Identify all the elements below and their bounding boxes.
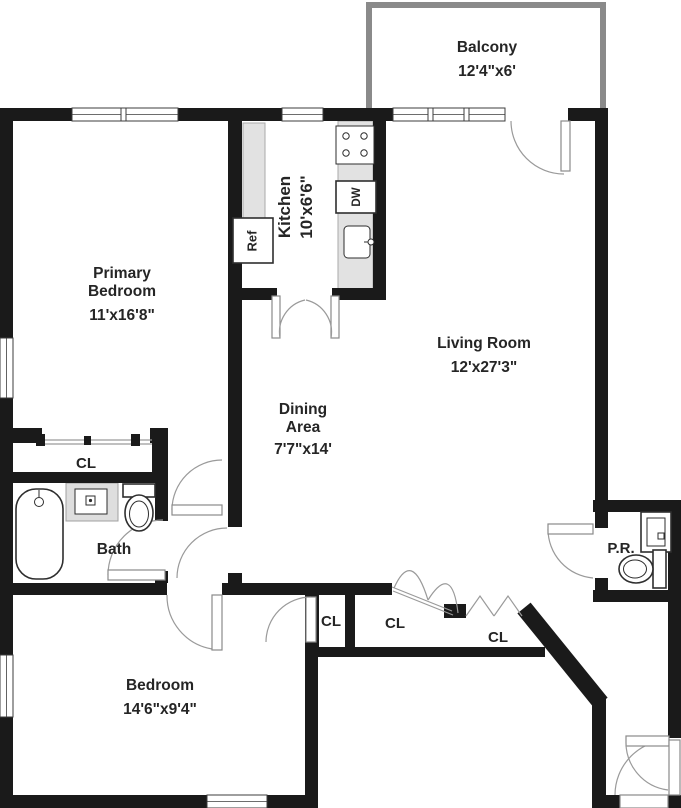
floor-plan: Ref DW [0,0,681,808]
window-living-top [393,108,505,121]
floor-plan-svg: Ref DW [0,0,681,808]
kitchen-sink [344,226,374,258]
wall [593,500,681,512]
refrigerator: Ref [233,218,273,263]
wall [592,698,606,798]
window-primary-left [0,338,13,398]
living-room-dims: 12'x27'3" [451,359,517,376]
powder-room-label: P.R. [607,540,634,557]
living-room-label: Living Room [437,335,531,352]
wall [593,590,681,602]
counter-left [243,123,265,219]
wall [444,604,466,618]
wall [0,428,42,443]
wall [668,795,681,808]
wall [0,108,13,338]
primary-bedroom-label-2: Bedroom [88,283,156,300]
wall [595,512,608,528]
bath-label: Bath [97,541,131,558]
vanity-sink [75,489,107,514]
closet1-label: CL [321,613,341,630]
window-bedroom-bottom [207,795,267,808]
primary-bedroom-label-1: Primary [93,265,151,282]
balcony-wall-top [366,2,606,8]
wall [305,647,545,657]
balcony-wall-left [366,2,372,108]
wall [0,583,167,595]
wall [0,472,168,483]
closet3-label: CL [488,629,508,646]
wall [228,573,242,595]
powder-room-sink [641,512,671,552]
dishwasher-label: DW [351,187,363,206]
wall [323,108,393,121]
kitchen-dims: 10'x6'6" [297,175,316,238]
window-kitchen-top [282,108,323,121]
balcony-label: Balcony [457,39,518,56]
wall [668,602,681,738]
balcony-dims: 12'4"x6' [458,63,516,80]
dining-area-label-2: Area [286,419,321,436]
wall [332,288,386,300]
wall [345,593,355,647]
wall [595,578,608,590]
wall [228,121,242,527]
wall [595,108,608,512]
dining-area-label-1: Dining [279,401,327,418]
wall [155,483,168,521]
window-primary-top [72,108,178,121]
bedroom-dims: 14'6"x9'4" [123,701,197,718]
wall [228,288,277,300]
balcony-wall-right [600,2,606,115]
window-bedroom-left [0,655,13,717]
bedroom-label: Bedroom [126,677,194,694]
dining-area-dims: 7'7"x14' [274,441,332,458]
primary-bedroom-dims: 11'x16'8" [89,307,155,324]
wall [592,795,620,808]
kitchen-label: Kitchen [275,176,294,238]
wall [178,108,282,121]
stove [336,126,374,164]
wall [0,795,207,808]
refrigerator-label: Ref [244,230,259,252]
closet2-label: CL [385,615,405,632]
dishwasher: DW [336,181,376,213]
bathtub [16,489,63,579]
closet-hall-label: CL [76,455,96,472]
wall [305,650,318,808]
wall [0,717,13,808]
bath-toilet [123,484,155,531]
